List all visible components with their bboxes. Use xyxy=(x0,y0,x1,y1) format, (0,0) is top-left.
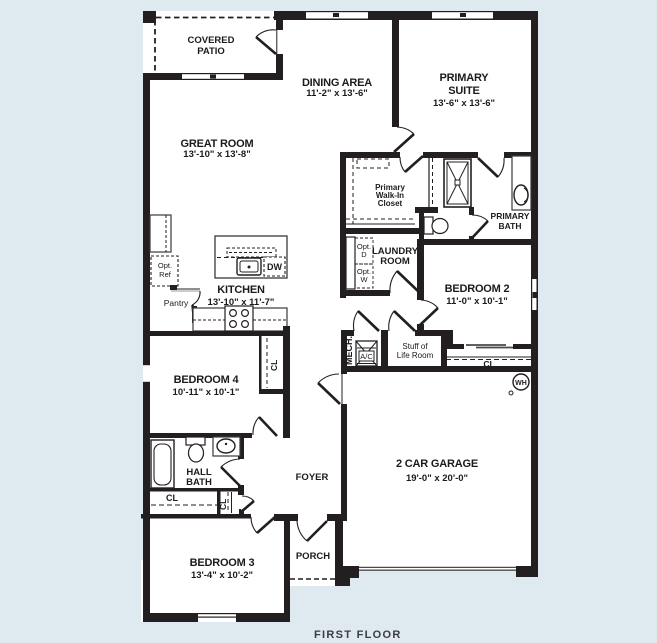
svg-text:WH: WH xyxy=(515,380,527,387)
svg-text:Life Room: Life Room xyxy=(397,351,434,360)
svg-text:11'-2" x 13'-6": 11'-2" x 13'-6" xyxy=(306,88,368,99)
svg-text:D: D xyxy=(361,250,367,259)
svg-text:W: W xyxy=(360,275,368,284)
svg-text:BATH: BATH xyxy=(186,477,212,488)
svg-text:BEDROOM 3: BEDROOM 3 xyxy=(190,557,255,569)
svg-text:13'-6" x 13'-6": 13'-6" x 13'-6" xyxy=(433,98,495,109)
svg-text:FIRST FLOOR: FIRST FLOOR xyxy=(314,629,402,641)
svg-text:13'-4" x 10'-2": 13'-4" x 10'-2" xyxy=(191,570,253,581)
svg-text:CL: CL xyxy=(218,499,228,510)
svg-text:PRIMARY: PRIMARY xyxy=(491,211,530,221)
svg-text:CL: CL xyxy=(269,360,279,371)
svg-text:Opt.: Opt. xyxy=(158,261,172,270)
svg-text:19'-0" x 20'-0": 19'-0" x 20'-0" xyxy=(406,473,468,484)
svg-text:BEDROOM 4: BEDROOM 4 xyxy=(174,374,240,386)
svg-text:13'-10" x 13'-8": 13'-10" x 13'-8" xyxy=(183,149,250,160)
svg-text:DW: DW xyxy=(267,262,282,272)
svg-text:KITCHEN: KITCHEN xyxy=(217,284,265,296)
svg-text:PATIO: PATIO xyxy=(197,46,225,57)
svg-text:PRIMARY: PRIMARY xyxy=(440,72,490,84)
svg-text:Ref: Ref xyxy=(159,270,172,279)
svg-text:A/C: A/C xyxy=(360,352,373,361)
svg-text:Stuff of: Stuff of xyxy=(402,342,428,351)
svg-text:FOYER: FOYER xyxy=(296,472,329,483)
svg-text:Closet: Closet xyxy=(378,199,403,208)
svg-text:11'-0" x 10'-1": 11'-0" x 10'-1" xyxy=(446,296,508,307)
svg-text:BEDROOM 2: BEDROOM 2 xyxy=(445,283,510,295)
svg-text:2 CAR GARAGE: 2 CAR GARAGE xyxy=(396,458,478,470)
svg-text:ROOM: ROOM xyxy=(380,256,410,267)
svg-text:COVERED: COVERED xyxy=(188,35,235,46)
svg-text:PORCH: PORCH xyxy=(296,551,330,562)
svg-text:CL: CL xyxy=(166,493,178,503)
svg-text:Pantry: Pantry xyxy=(164,298,189,308)
svg-text:BATH: BATH xyxy=(499,221,522,231)
svg-text:SUITE: SUITE xyxy=(448,85,479,97)
svg-text:10'-11" x 10'-1": 10'-11" x 10'-1" xyxy=(173,387,240,398)
svg-text:MECH.: MECH. xyxy=(344,336,354,365)
